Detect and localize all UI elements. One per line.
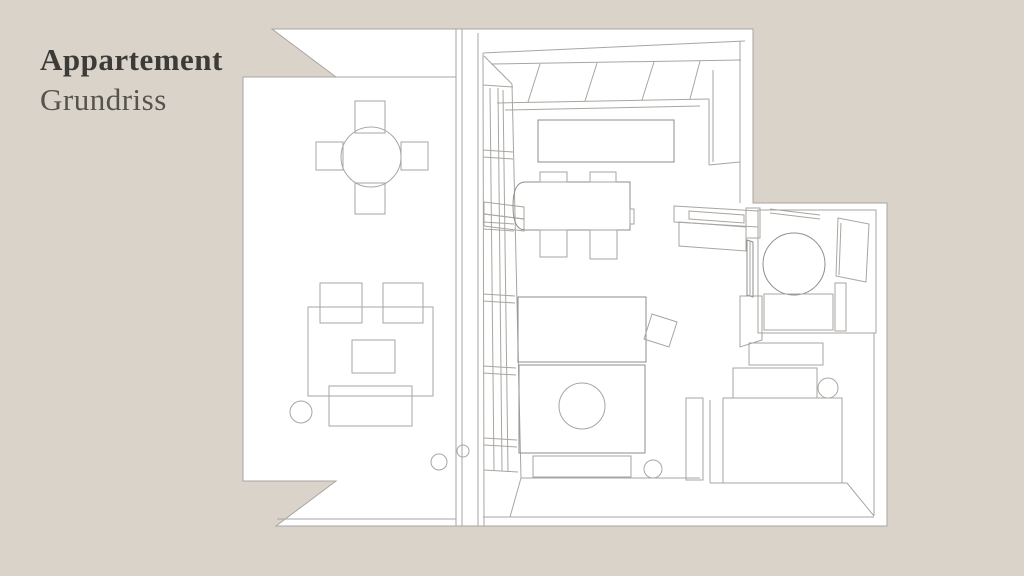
slide: Appartement Grundriss — [0, 0, 1024, 576]
footprint — [243, 29, 887, 526]
floor-plan — [0, 0, 1024, 576]
floor-plan-outline — [243, 29, 887, 526]
